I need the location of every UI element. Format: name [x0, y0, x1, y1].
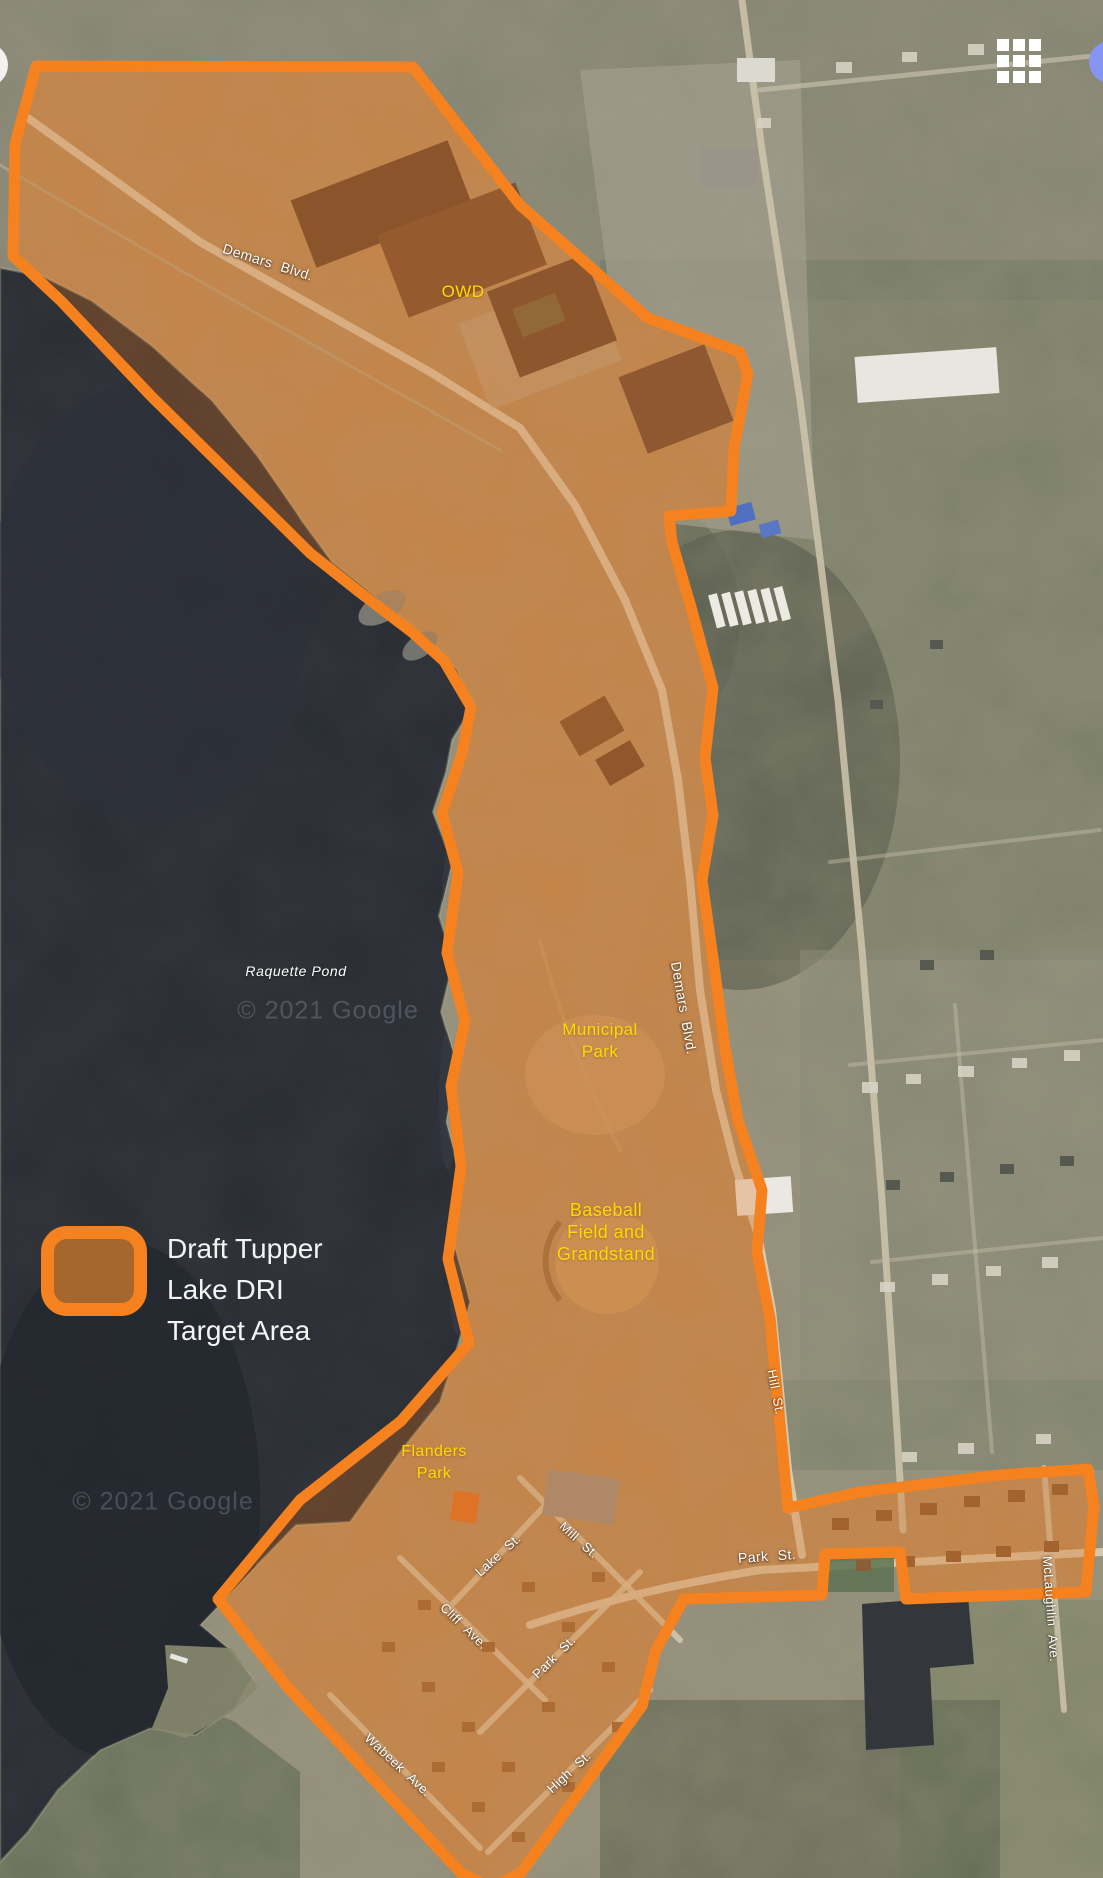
site-label-flanders-park: Flanders Park	[401, 1441, 466, 1485]
map-canvas[interactable]: Demars Blvd. OWD Raquette Pond © 2021 Go…	[0, 0, 1103, 1878]
google-watermark-south: © 2021 Google	[72, 1488, 254, 1517]
satellite-imagery	[0, 0, 1103, 1878]
site-label-owd: OWD	[442, 282, 485, 302]
site-label-baseball-field: Baseball Field and Grandstand	[557, 1199, 655, 1265]
dri-area-swatch	[41, 1226, 147, 1316]
apps-grid-icon[interactable]	[997, 39, 1041, 83]
water-label-raquette-pond: Raquette Pond	[245, 963, 346, 979]
google-watermark-mid: © 2021 Google	[237, 997, 419, 1026]
legend: Draft Tupper Lake DRI Target Area	[41, 1226, 323, 1351]
site-label-municipal-park: Municipal Park	[562, 1019, 637, 1063]
legend-label: Draft Tupper Lake DRI Target Area	[167, 1226, 323, 1351]
